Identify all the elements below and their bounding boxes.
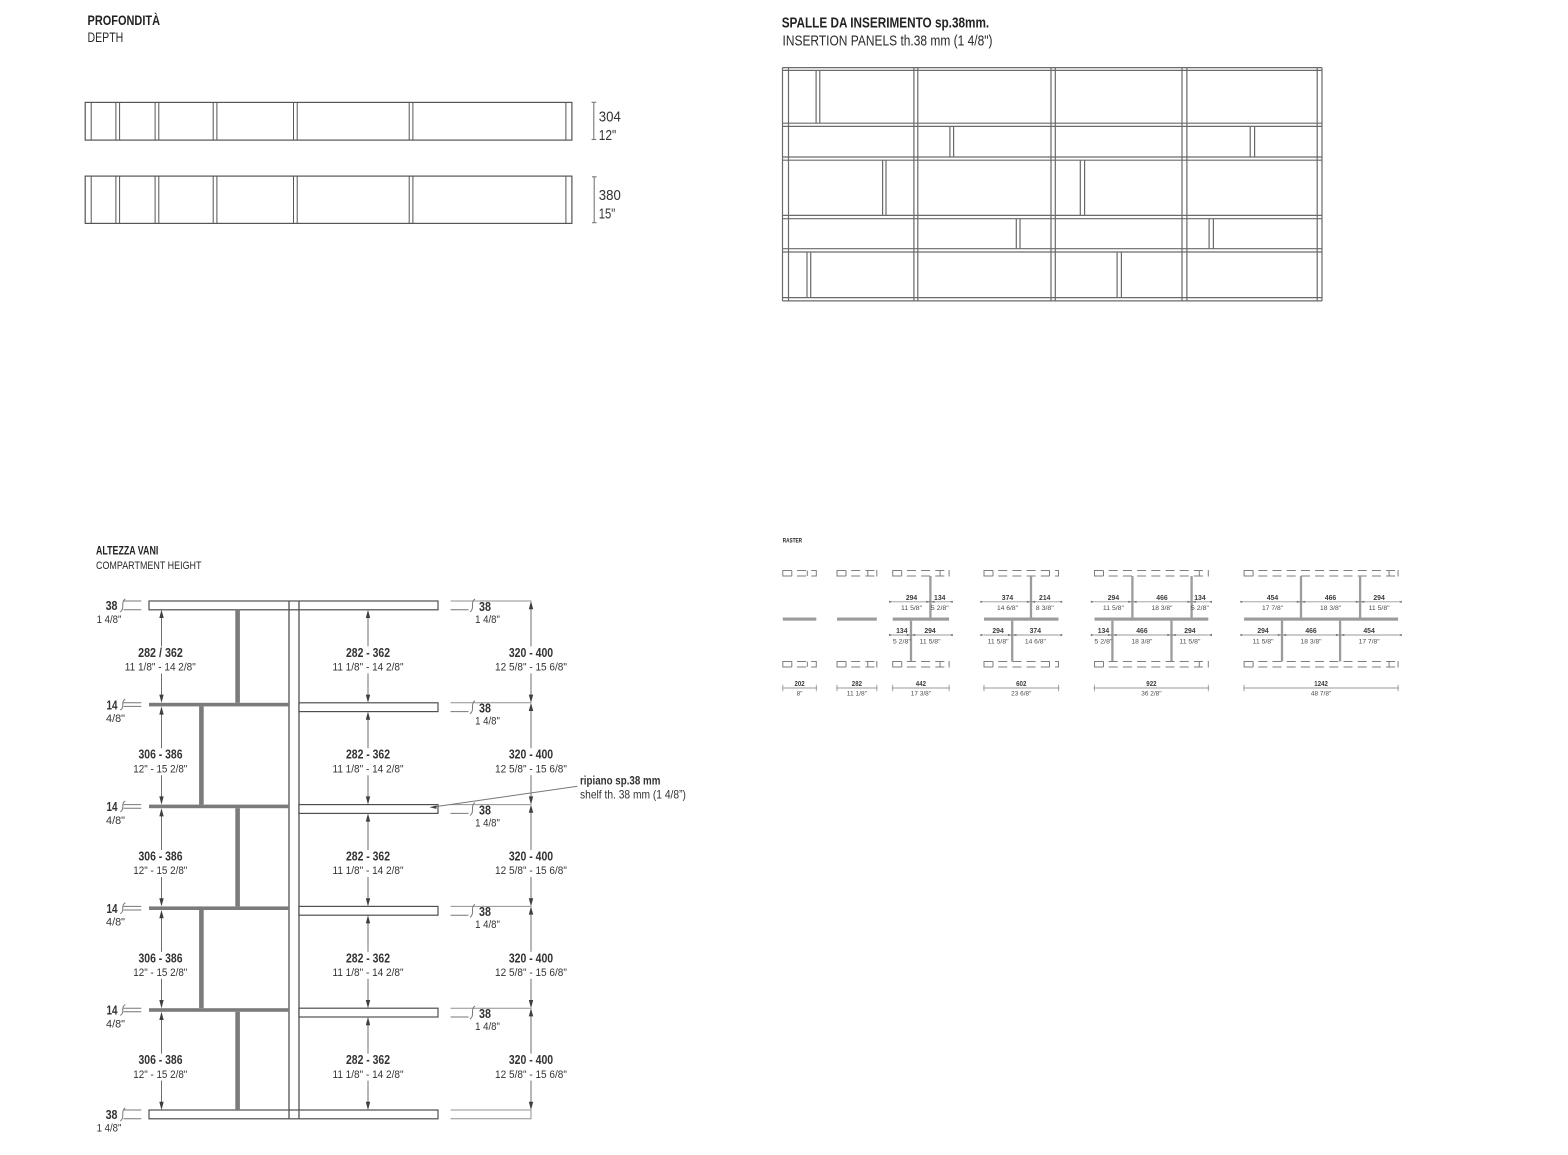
svg-text:282 / 362: 282 / 362	[138, 646, 183, 660]
svg-text:12" - 15 2/8": 12" - 15 2/8"	[133, 967, 187, 979]
svg-text:11 1/8" - 14 2/8": 11 1/8" - 14 2/8"	[333, 967, 404, 979]
svg-text:4/8": 4/8"	[106, 1019, 125, 1031]
svg-text:602: 602	[1016, 679, 1026, 688]
svg-text:294: 294	[906, 593, 918, 602]
svg-text:294: 294	[1108, 593, 1120, 602]
svg-text:466: 466	[1136, 626, 1147, 635]
svg-text:1 4/8": 1 4/8"	[97, 614, 122, 626]
svg-text:PROFONDITÀ: PROFONDITÀ	[88, 12, 161, 28]
svg-text:5 2/8": 5 2/8"	[893, 638, 911, 645]
svg-text:18 3/8": 18 3/8"	[1301, 638, 1322, 645]
svg-text:5 2/8": 5 2/8"	[931, 605, 949, 612]
svg-text:282 - 362: 282 - 362	[346, 850, 390, 864]
svg-text:1 4/8": 1 4/8"	[475, 716, 500, 728]
svg-text:SPALLE DA INSERIMENTO sp.38mm.: SPALLE DA INSERIMENTO sp.38mm.	[782, 16, 990, 32]
svg-text:ALTEZZA VANI: ALTEZZA VANI	[96, 544, 158, 558]
svg-text:282 - 362: 282 - 362	[346, 1053, 390, 1067]
svg-text:466: 466	[1325, 593, 1336, 602]
svg-text:12" - 15 2/8": 12" - 15 2/8"	[133, 763, 187, 775]
svg-text:1 4/8": 1 4/8"	[475, 817, 500, 829]
svg-text:36 2/8": 36 2/8"	[1141, 691, 1161, 698]
svg-text:374: 374	[1002, 593, 1014, 602]
svg-text:466: 466	[1156, 593, 1167, 602]
svg-text:38: 38	[106, 1108, 118, 1122]
svg-text:ripiano sp.38 mm: ripiano sp.38 mm	[580, 773, 660, 787]
svg-text:11 1/8" - 14 2/8": 11 1/8" - 14 2/8"	[125, 662, 196, 674]
svg-text:202: 202	[794, 679, 804, 688]
svg-text:1 4/8": 1 4/8"	[475, 614, 500, 626]
svg-text:380: 380	[599, 187, 621, 204]
svg-text:320 - 400: 320 - 400	[509, 850, 553, 864]
svg-text:454: 454	[1267, 593, 1279, 602]
svg-text:14: 14	[107, 800, 118, 814]
svg-text:214: 214	[1039, 593, 1051, 602]
svg-text:38: 38	[479, 803, 491, 817]
svg-text:17 3/8": 17 3/8"	[911, 691, 931, 698]
svg-text:shelf th. 38 mm (1 4/8”): shelf th. 38 mm (1 4/8”)	[580, 787, 686, 801]
svg-text:306 - 386: 306 - 386	[139, 850, 183, 864]
svg-text:14: 14	[107, 902, 118, 916]
svg-text:282: 282	[852, 679, 862, 688]
svg-text:134: 134	[896, 626, 908, 635]
svg-text:12" - 15 2/8": 12" - 15 2/8"	[133, 1069, 187, 1081]
svg-text:134: 134	[1098, 626, 1110, 635]
svg-text:COMPARTMENT HEIGHT: COMPARTMENT HEIGHT	[96, 560, 202, 572]
svg-text:466: 466	[1305, 626, 1316, 635]
svg-text:320 - 400: 320 - 400	[509, 951, 553, 965]
svg-text:294: 294	[992, 626, 1004, 635]
svg-text:11 5/8": 11 5/8"	[1253, 638, 1274, 645]
svg-text:12 5/8" - 15 6/8": 12 5/8" - 15 6/8"	[495, 967, 567, 979]
svg-text:12 5/8" - 15 6/8": 12 5/8" - 15 6/8"	[495, 662, 567, 674]
svg-text:320 - 400: 320 - 400	[509, 748, 553, 762]
svg-text:11 1/8" - 14 2/8": 11 1/8" - 14 2/8"	[333, 1069, 404, 1081]
svg-text:11 5/8": 11 5/8"	[920, 638, 941, 645]
svg-text:1242: 1242	[1314, 679, 1328, 688]
svg-text:DEPTH: DEPTH	[88, 29, 124, 45]
svg-text:134: 134	[934, 593, 946, 602]
svg-text:12 5/8" - 15 6/8": 12 5/8" - 15 6/8"	[495, 763, 567, 775]
svg-text:320 - 400: 320 - 400	[509, 1053, 553, 1067]
svg-text:11 1/8" - 14 2/8": 11 1/8" - 14 2/8"	[333, 662, 404, 674]
svg-text:306 - 386: 306 - 386	[139, 951, 183, 965]
svg-text:1 4/8": 1 4/8"	[97, 1122, 122, 1134]
svg-text:11 5/8": 11 5/8"	[1369, 605, 1390, 612]
svg-text:14: 14	[107, 698, 118, 712]
svg-text:17 7/8": 17 7/8"	[1359, 638, 1380, 645]
svg-text:38: 38	[106, 599, 118, 613]
svg-text:23 6/8": 23 6/8"	[1011, 691, 1031, 698]
svg-text:282 - 362: 282 - 362	[346, 951, 390, 965]
svg-text:11 1/8": 11 1/8"	[847, 691, 867, 698]
svg-text:294: 294	[1184, 626, 1196, 635]
svg-text:922: 922	[1146, 679, 1156, 688]
svg-text:454: 454	[1363, 626, 1375, 635]
svg-text:4/8": 4/8"	[106, 917, 125, 929]
svg-text:1 4/8": 1 4/8"	[475, 1021, 500, 1033]
svg-text:294: 294	[924, 626, 936, 635]
svg-text:14 6/8": 14 6/8"	[997, 605, 1018, 612]
svg-text:294: 294	[1373, 593, 1385, 602]
svg-text:304: 304	[599, 109, 621, 126]
svg-text:8 3/8": 8 3/8"	[1036, 605, 1054, 612]
svg-text:294: 294	[1257, 626, 1269, 635]
svg-text:320 - 400: 320 - 400	[509, 646, 553, 660]
svg-text:18 3/8": 18 3/8"	[1320, 605, 1341, 612]
svg-text:12" - 15 2/8": 12" - 15 2/8"	[133, 865, 187, 877]
svg-text:134: 134	[1194, 593, 1206, 602]
svg-text:5 2/8": 5 2/8"	[1094, 638, 1112, 645]
svg-text:11 5/8": 11 5/8"	[988, 638, 1009, 645]
svg-text:17 7/8": 17 7/8"	[1262, 605, 1283, 612]
svg-text:8": 8"	[797, 691, 803, 698]
svg-text:18 3/8": 18 3/8"	[1131, 638, 1152, 645]
svg-text:14 6/8": 14 6/8"	[1025, 638, 1046, 645]
svg-text:38: 38	[479, 1007, 491, 1021]
svg-text:442: 442	[916, 679, 926, 688]
svg-text:306 - 386: 306 - 386	[139, 1053, 183, 1067]
svg-text:4/8": 4/8"	[106, 713, 125, 725]
svg-text:38: 38	[479, 905, 491, 919]
svg-text:11 5/8": 11 5/8"	[1103, 605, 1124, 612]
svg-text:14: 14	[107, 1004, 118, 1018]
svg-text:12 5/8" - 15 6/8": 12 5/8" - 15 6/8"	[495, 865, 567, 877]
svg-text:11 1/8" - 14 2/8": 11 1/8" - 14 2/8"	[333, 865, 404, 877]
svg-text:18 3/8": 18 3/8"	[1152, 605, 1173, 612]
svg-text:38: 38	[479, 600, 491, 614]
svg-text:4/8": 4/8"	[106, 815, 125, 827]
svg-text:38: 38	[479, 702, 491, 716]
svg-text:11 1/8" - 14 2/8": 11 1/8" - 14 2/8"	[333, 763, 404, 775]
svg-text:11 5/8": 11 5/8"	[901, 605, 922, 612]
svg-text:1 4/8": 1 4/8"	[475, 919, 500, 931]
svg-text:306 - 386: 306 - 386	[139, 748, 183, 762]
svg-text:15": 15"	[599, 206, 616, 223]
svg-text:282 - 362: 282 - 362	[346, 646, 390, 660]
svg-text:RASTER: RASTER	[783, 538, 802, 545]
svg-text:11 5/8": 11 5/8"	[1179, 638, 1200, 645]
svg-text:374: 374	[1030, 626, 1042, 635]
svg-text:48 7/8": 48 7/8"	[1311, 691, 1331, 698]
svg-text:12": 12"	[599, 127, 617, 144]
svg-text:5 2/8": 5 2/8"	[1191, 605, 1209, 612]
svg-text:12 5/8" - 15 6/8": 12 5/8" - 15 6/8"	[495, 1069, 567, 1081]
svg-text:282 - 362: 282 - 362	[346, 748, 390, 762]
svg-text:INSERTION PANELS th.38 mm (1 4: INSERTION PANELS th.38 mm (1 4/8")	[783, 34, 993, 50]
